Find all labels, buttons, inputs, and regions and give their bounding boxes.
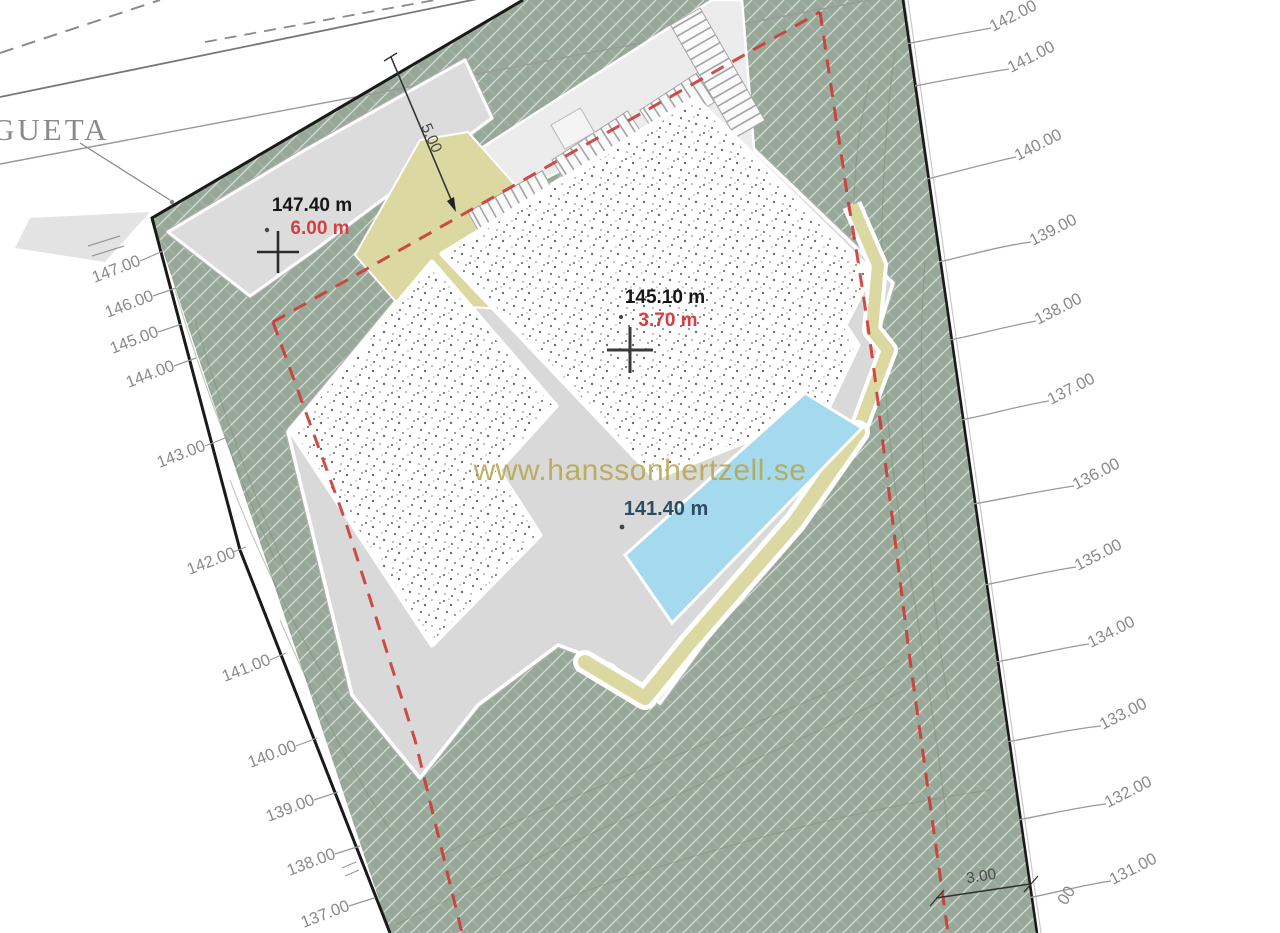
contour-label-right: 136.00 <box>1070 455 1123 494</box>
contour-label-right: 135.00 <box>1072 536 1125 575</box>
watermark: www.hanssonhertzell.se <box>473 454 807 487</box>
site-plan: GUETA 147.40 m 6.00 m 145.10 m 3.70 m 14… <box>0 0 1280 933</box>
contour-label-right: 137.00 <box>1045 370 1098 409</box>
street-leader <box>80 143 174 204</box>
contour-label-left: 146.00 <box>102 287 156 322</box>
level-dot-main <box>619 315 623 319</box>
contour-label-left: 139.00 <box>263 791 317 826</box>
pool-terrace-elevation: 141.40 m <box>624 498 709 520</box>
contour-label-right: 139.00 <box>1027 211 1080 250</box>
upper-terrace-elevation: 147.40 m <box>272 195 352 216</box>
contour-label-right: 134.00 <box>1085 613 1138 652</box>
main-terrace-elevation: 145.10 m <box>625 287 705 308</box>
contour-label-left: 144.00 <box>123 357 177 392</box>
contour-label-right: 138.00 <box>1032 290 1085 329</box>
level-dot-pool <box>620 525 625 530</box>
road-centerline-dashed-2 <box>205 0 435 42</box>
contour-label-right: 00 <box>1054 883 1079 908</box>
contour-label-right: 141.00 <box>1005 38 1058 77</box>
upper-terrace-height: 6.00 m <box>290 218 349 239</box>
road-centerline-dashed <box>0 0 160 53</box>
contour-label-right: 142.00 <box>987 0 1040 36</box>
main-terrace-height: 3.70 m <box>638 310 697 331</box>
level-dot-upper <box>265 228 269 232</box>
street-label: GUETA <box>0 112 110 147</box>
contour-label-left: 142.00 <box>184 544 238 579</box>
contour-label-left: 143.00 <box>154 437 208 472</box>
contour-label-left: 141.00 <box>219 651 273 686</box>
contour-label-right: 131.00 <box>1107 850 1160 889</box>
contour-label-left: 137.00 <box>298 897 352 932</box>
contour-label-right: 133.00 <box>1097 695 1150 734</box>
contour-label-right: 132.00 <box>1102 773 1155 812</box>
contour-label-left: 140.00 <box>245 737 299 772</box>
contour-label-left: 138.00 <box>284 845 338 880</box>
site-plan-drawing: GUETA 147.40 m 6.00 m 145.10 m 3.70 m 14… <box>0 0 1280 933</box>
contour-label-right: 140.00 <box>1012 126 1065 165</box>
contour-label-left: 145.00 <box>107 323 161 358</box>
